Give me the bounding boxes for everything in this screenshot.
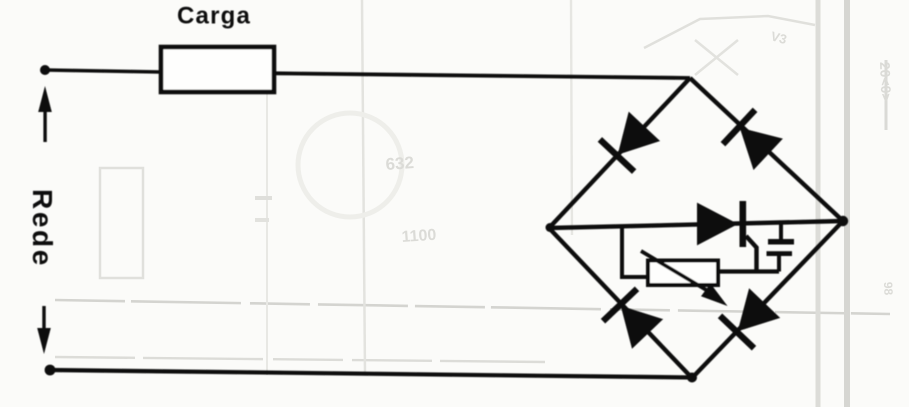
svg-text:Carga: Carga: [177, 3, 251, 30]
svg-text:632: 632: [385, 153, 415, 174]
svg-text:98: 98: [881, 282, 895, 296]
svg-text:1100: 1100: [401, 227, 437, 246]
svg-text:Rede: Rede: [27, 189, 58, 268]
svg-text:20<0>: 20<0>: [877, 62, 894, 102]
